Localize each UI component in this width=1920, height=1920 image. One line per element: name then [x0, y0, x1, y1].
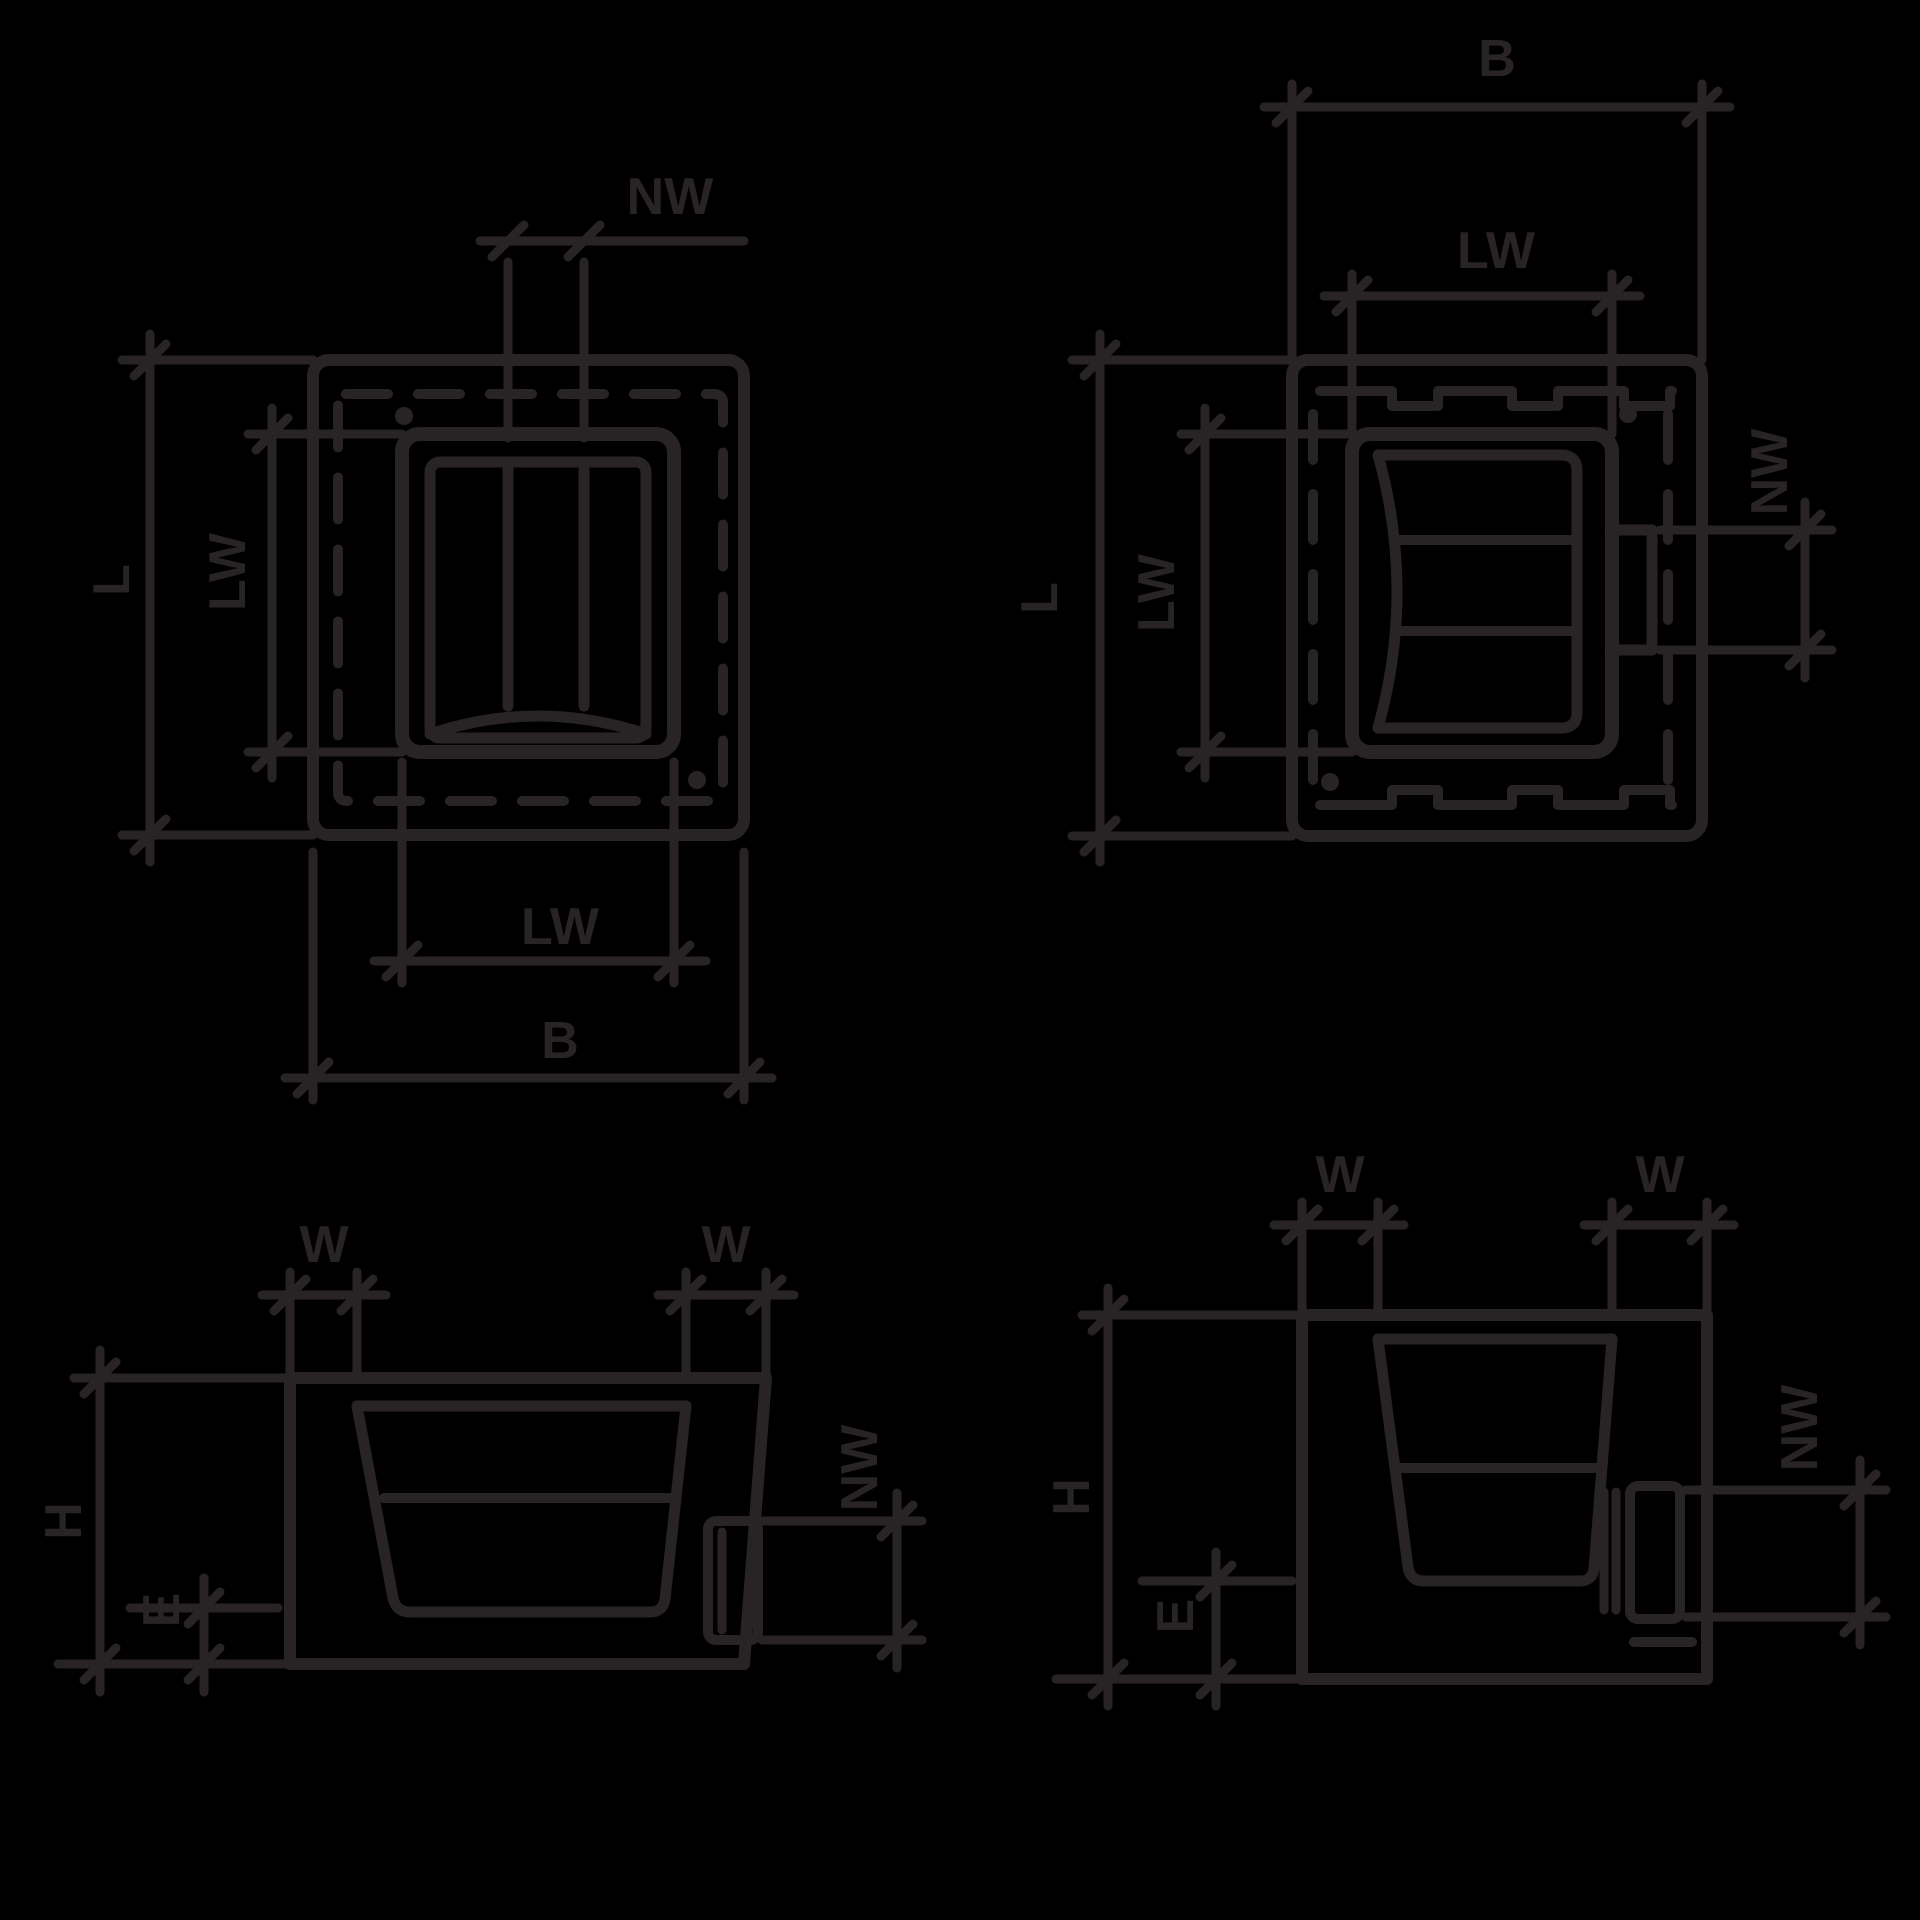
dimension-nw: NW [762, 1424, 922, 1668]
dimension-nw: NW [1686, 1384, 1886, 1645]
dimension-w-left: W [262, 1216, 386, 1378]
grate-arc [430, 716, 646, 734]
dim-label-nw: NW [1771, 1384, 1829, 1472]
channel-profile [1378, 1339, 1612, 1581]
dim-label-h: H [35, 1502, 93, 1540]
dimension-l: L [83, 334, 313, 862]
body-section-outline [1302, 1315, 1707, 1679]
lock-dot [1321, 773, 1339, 791]
dim-label-e: E [1147, 1599, 1205, 1634]
dimension-lw-side: LW [199, 408, 402, 778]
channel-profile [357, 1406, 686, 1612]
dim-label-lw: LW [521, 898, 600, 956]
dimension-w-right: W [1584, 1146, 1734, 1315]
dimension-h: H [1043, 1288, 1302, 1706]
lock-dot [395, 407, 413, 425]
dimension-b: B [285, 852, 772, 1100]
outlet-socket [1630, 1486, 1680, 1619]
dim-label-nw: NW [627, 168, 715, 226]
dimension-w-left: W [1274, 1146, 1404, 1315]
dim-label-h: H [1043, 1478, 1101, 1516]
dim-label-e: E [133, 1593, 191, 1628]
section-view-left: W W H E [35, 1216, 922, 1692]
dimension-h: H [35, 1350, 290, 1692]
grate-opening [430, 462, 646, 738]
dim-label-l: L [83, 564, 141, 596]
dimension-lw-top: LW [1324, 222, 1640, 434]
castellation-top [1320, 391, 1672, 406]
grate-opening [1378, 455, 1577, 728]
dim-label-l: L [1011, 582, 1069, 614]
dim-label-b: B [541, 1012, 579, 1070]
dim-label-lw: LW [1128, 553, 1186, 632]
drawing-canvas: NW L LW LW [0, 0, 1920, 1920]
technical-drawing: NW L LW LW [0, 0, 1920, 1920]
dim-label-w: W [1635, 1146, 1685, 1204]
dimension-lw-bottom: LW [374, 762, 706, 983]
dim-label-lw: LW [199, 532, 257, 611]
dimension-lw-side: LW [1128, 408, 1352, 778]
castellation-bottom [1320, 790, 1672, 805]
lock-dot [688, 771, 706, 789]
dimension-w-right: W [658, 1216, 794, 1378]
grate-frame [402, 434, 674, 752]
dim-label-nw: NW [1741, 428, 1799, 516]
dimension-nw: NW [1660, 428, 1832, 678]
dim-label-lw: LW [1457, 222, 1536, 280]
dim-label-w: W [299, 1216, 349, 1274]
dim-label-b: B [1478, 30, 1516, 88]
lock-dot [1619, 405, 1637, 423]
dimension-e: E [130, 1578, 278, 1692]
plan-view-underside: B LW L LW [1011, 30, 1832, 862]
section-view-right: W W H E [1043, 1146, 1886, 1706]
dim-label-nw: NW [831, 1424, 889, 1512]
dim-label-w: W [1315, 1146, 1365, 1204]
plan-view-top: NW L LW LW [83, 168, 772, 1100]
dim-label-w: W [701, 1216, 751, 1274]
